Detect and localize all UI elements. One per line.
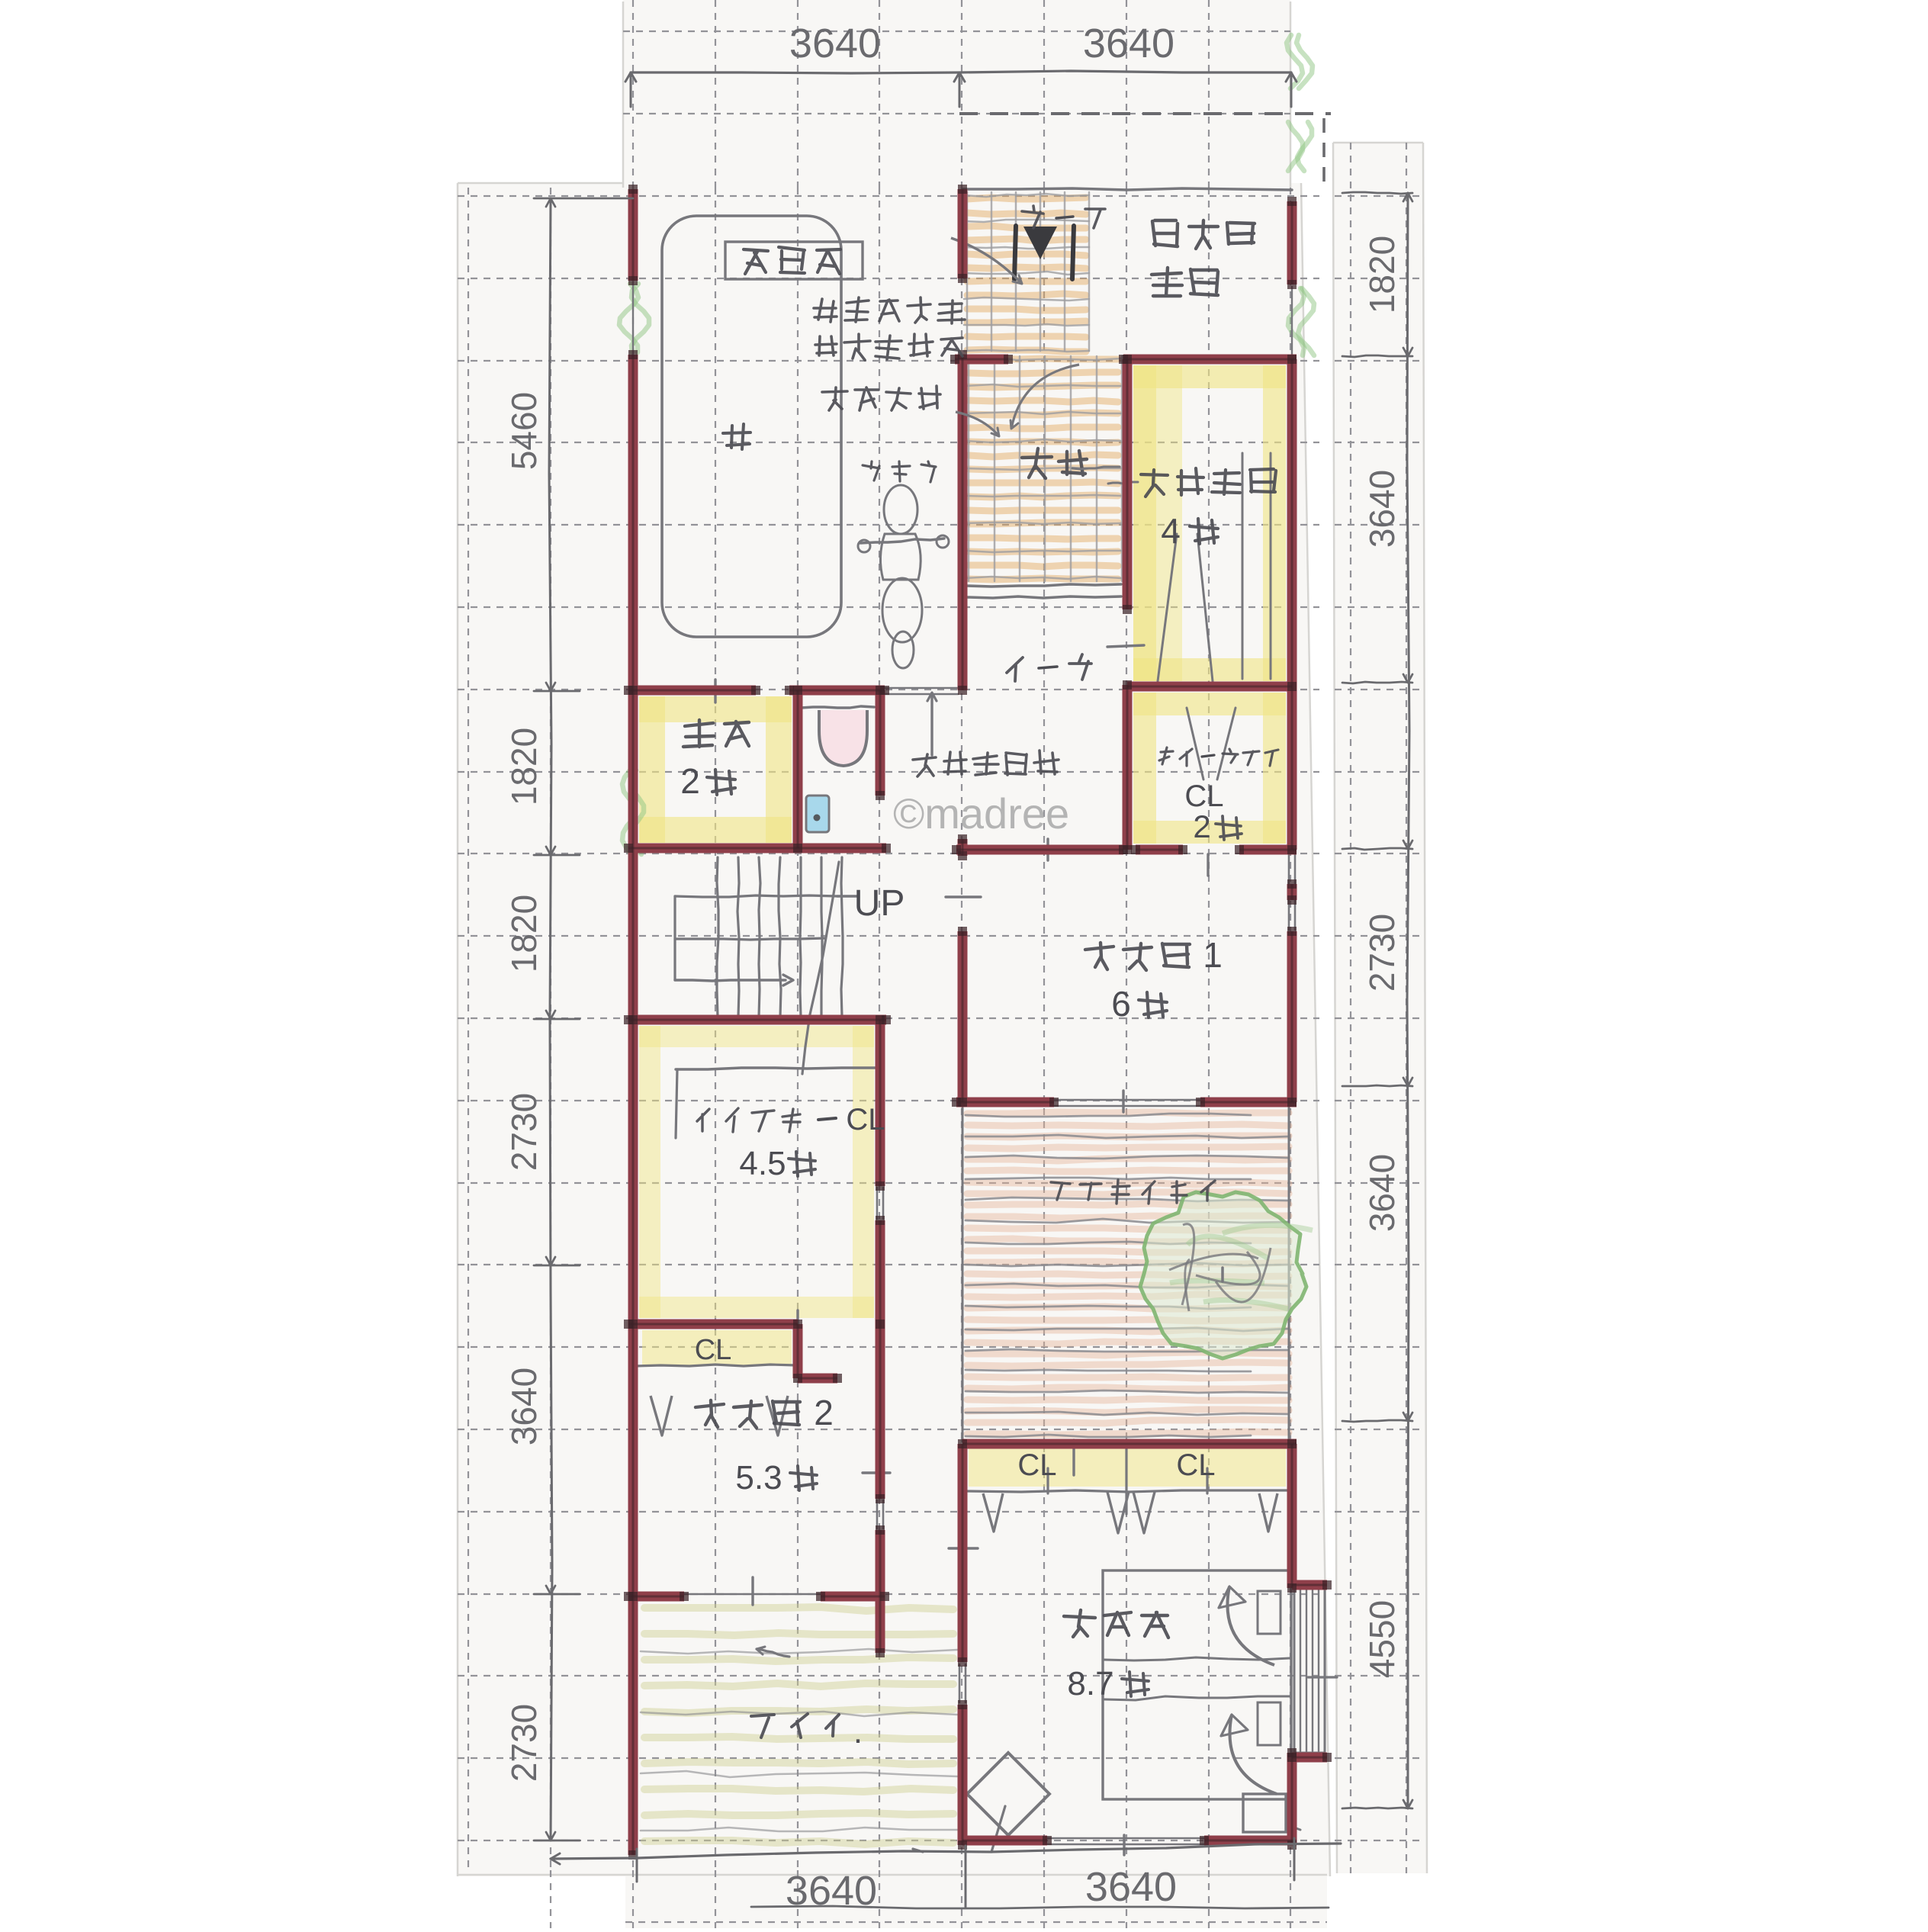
- svg-text:2730: 2730: [504, 1093, 544, 1171]
- svg-text:8.7: 8.7: [1067, 1665, 1113, 1702]
- svg-text:CL: CL: [846, 1103, 885, 1136]
- svg-text:1820: 1820: [504, 728, 544, 805]
- svg-text:CL: CL: [695, 1334, 732, 1366]
- svg-text:3640: 3640: [1085, 1864, 1177, 1910]
- svg-text:5.3: 5.3: [735, 1459, 782, 1496]
- svg-text:1820: 1820: [504, 895, 544, 972]
- svg-text:CL: CL: [1017, 1448, 1056, 1482]
- svg-text:UP: UP: [854, 883, 905, 924]
- svg-text:5460: 5460: [504, 392, 544, 470]
- svg-text:3640: 3640: [504, 1368, 544, 1445]
- svg-text:6: 6: [1111, 984, 1131, 1024]
- svg-text:2: 2: [1193, 808, 1210, 844]
- svg-text:4: 4: [1161, 511, 1181, 551]
- svg-text:1: 1: [1203, 935, 1223, 975]
- svg-text:2730: 2730: [1362, 914, 1402, 992]
- svg-text:2730: 2730: [504, 1704, 544, 1782]
- svg-text:©madree: ©madree: [893, 789, 1069, 837]
- svg-text:3640: 3640: [1083, 21, 1174, 66]
- svg-text:3640: 3640: [1362, 470, 1402, 548]
- svg-text:CL: CL: [1176, 1448, 1215, 1482]
- svg-text:3640: 3640: [1362, 1154, 1402, 1232]
- svg-text:1820: 1820: [1362, 236, 1402, 313]
- svg-text:2: 2: [680, 761, 700, 801]
- svg-text:.: .: [853, 1713, 863, 1750]
- svg-text:4550: 4550: [1362, 1600, 1402, 1678]
- svg-text:3640: 3640: [786, 1868, 877, 1914]
- svg-text:2: 2: [814, 1393, 834, 1432]
- svg-text:4.5: 4.5: [739, 1145, 786, 1182]
- svg-text:3640: 3640: [789, 21, 881, 66]
